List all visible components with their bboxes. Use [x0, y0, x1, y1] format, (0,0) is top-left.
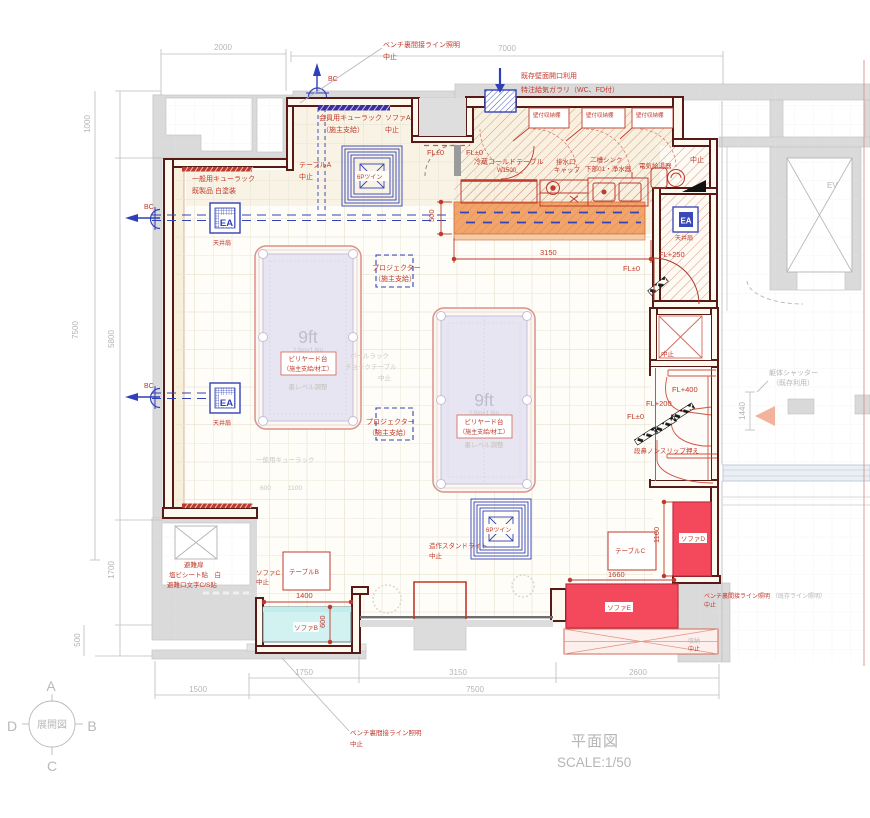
svg-text:（既存ライン照明）: （既存ライン照明）	[772, 592, 826, 600]
svg-text:避難口文字C/S貼: 避難口文字C/S貼	[167, 580, 217, 589]
svg-text:中止: 中止	[383, 52, 397, 61]
svg-text:ビリヤード台: ビリヤード台	[289, 354, 328, 363]
svg-text:7000: 7000	[498, 44, 516, 53]
svg-text:BC: BC	[328, 76, 338, 83]
svg-text:造作スタンドライト: 造作スタンドライト	[429, 541, 488, 550]
svg-text:6Pツイン: 6Pツイン	[357, 175, 382, 181]
svg-text:塩ビシート貼 白: 塩ビシート貼 白	[169, 570, 221, 579]
svg-text:EA: EA	[220, 398, 233, 409]
svg-text:6Pツイン: 6Pツイン	[486, 528, 511, 534]
svg-text:2000: 2000	[214, 43, 232, 52]
svg-text:FL±0: FL±0	[627, 412, 644, 421]
svg-text:中止: 中止	[299, 172, 313, 181]
svg-text:壁付収納棚: 壁付収納棚	[636, 111, 664, 119]
svg-text:9ft: 9ft	[298, 327, 318, 347]
svg-text:テーブルC: テーブルC	[615, 546, 646, 555]
svg-text:（施主支給）: （施主支給）	[322, 125, 364, 134]
svg-text:EA: EA	[220, 218, 233, 229]
svg-text:墨レベル調整: 墨レベル調整	[289, 382, 329, 391]
svg-text:ビリヤード台: ビリヤード台	[465, 417, 504, 426]
svg-text:下部01・浄水器: 下部01・浄水器	[585, 164, 632, 173]
svg-text:A: A	[46, 678, 56, 694]
svg-text:中止: 中止	[688, 645, 700, 653]
svg-text:（施主支給/材工）: （施主支給/材工）	[459, 428, 509, 436]
svg-text:チョークテーブル: チョークテーブル	[345, 362, 397, 371]
svg-text:C: C	[47, 758, 57, 774]
svg-text:ソファC: ソファC	[256, 569, 281, 577]
svg-text:1100: 1100	[288, 485, 302, 492]
svg-text:（施主支給）: （施主支給）	[374, 274, 416, 283]
svg-text:1750: 1750	[295, 668, 313, 677]
svg-text:プロジェクター: プロジェクター	[372, 263, 421, 272]
svg-text:一般用キューラック: 一般用キューラック	[256, 455, 315, 464]
svg-text:W1500: W1500	[497, 168, 517, 174]
svg-text:600: 600	[260, 485, 271, 492]
svg-text:キャップ: キャップ	[554, 166, 581, 174]
svg-text:1660: 1660	[608, 570, 625, 579]
svg-text:中止: 中止	[704, 601, 716, 609]
svg-text:FL±0: FL±0	[466, 148, 483, 157]
svg-text:電気給湯器: 電気給湯器	[639, 161, 672, 170]
svg-text:特注給気ガラリ（WC、FD付）: 特注給気ガラリ（WC、FD付）	[521, 85, 619, 94]
svg-text:墨レベル調整: 墨レベル調整	[465, 440, 505, 449]
svg-text:中止: 中止	[350, 739, 364, 748]
svg-text:避難扉: 避難扉	[184, 560, 204, 569]
svg-text:B: B	[87, 718, 96, 734]
svg-text:D: D	[7, 718, 17, 734]
svg-text:展開図: 展開図	[37, 719, 67, 731]
svg-text:テーブルA: テーブルA	[299, 160, 332, 169]
svg-text:プロジェクター: プロジェクター	[366, 417, 415, 426]
svg-text:壁付収納棚: 壁付収納棚	[533, 111, 561, 119]
svg-text:600: 600	[318, 615, 327, 628]
svg-text:中止: 中止	[661, 349, 675, 358]
svg-text:1440: 1440	[738, 402, 747, 420]
svg-text:1400: 1400	[296, 591, 313, 600]
svg-text:ソファB: ソファB	[294, 624, 318, 632]
svg-text:1000: 1000	[83, 115, 92, 133]
svg-text:500: 500	[427, 209, 436, 222]
svg-text:中止: 中止	[256, 577, 270, 586]
svg-text:躯体シャッター: 躯体シャッター	[769, 368, 818, 377]
svg-text:壁付収納棚: 壁付収納棚	[586, 111, 614, 119]
svg-text:FL+250: FL+250	[659, 250, 685, 259]
svg-text:既製品 白塗装: 既製品 白塗装	[192, 186, 236, 195]
svg-text:BC: BC	[144, 204, 154, 211]
svg-text:9ft: 9ft	[474, 390, 494, 410]
svg-text:3150: 3150	[449, 668, 467, 677]
svg-text:ソファA: ソファA	[385, 114, 411, 122]
svg-text:ボールラック: ボールラック	[350, 352, 389, 360]
svg-text:2600: 2600	[629, 668, 647, 677]
svg-text:ベンチ裏間接ライン照明: ベンチ裏間接ライン照明	[350, 728, 422, 737]
svg-text:1500: 1500	[189, 685, 207, 694]
svg-text:3150: 3150	[540, 248, 557, 257]
svg-text:二槽シンク: 二槽シンク	[590, 155, 623, 164]
svg-text:段鼻ノンスリップ押え: 段鼻ノンスリップ押え	[634, 446, 699, 455]
svg-text:収納: 収納	[688, 637, 700, 645]
svg-text:中止: 中止	[690, 155, 704, 164]
svg-text:FL±0: FL±0	[623, 264, 640, 273]
svg-text:SCALE:1/50: SCALE:1/50	[557, 755, 631, 770]
svg-text:（施主支給/材工）: （施主支給/材工）	[283, 365, 333, 373]
svg-text:7500: 7500	[466, 685, 484, 694]
svg-text:一般用キューラック: 一般用キューラック	[192, 174, 255, 183]
svg-text:FL+400: FL+400	[672, 385, 698, 394]
svg-text:5800: 5800	[107, 330, 116, 348]
svg-text:ベンチ裏間接ライン照明: ベンチ裏間接ライン照明	[383, 40, 460, 49]
svg-text:1160: 1160	[652, 527, 661, 543]
svg-text:FL±0: FL±0	[427, 148, 444, 157]
svg-text:天井扇: 天井扇	[675, 234, 693, 242]
svg-text:天井扇: 天井扇	[213, 239, 231, 247]
svg-text:ソファD: ソファD	[681, 535, 706, 543]
svg-text:テーブルB: テーブルB	[289, 567, 319, 576]
svg-text:中止: 中止	[385, 125, 399, 134]
svg-text:中止: 中止	[429, 551, 443, 560]
svg-text:（既存利用）: （既存利用）	[772, 378, 814, 387]
svg-text:排水口: 排水口	[556, 157, 576, 166]
svg-text:会員用キューラック: 会員用キューラック	[319, 113, 382, 122]
svg-text:冷蔵コールドテーブル: 冷蔵コールドテーブル	[474, 157, 544, 166]
svg-text:EA: EA	[680, 217, 691, 226]
svg-text:ベンチ裏間接ライン照明: ベンチ裏間接ライン照明	[704, 592, 770, 600]
svg-text:中止: 中止	[378, 373, 392, 382]
svg-text:7500: 7500	[71, 321, 80, 339]
svg-text:既存壁面開口利用: 既存壁面開口利用	[521, 71, 577, 80]
svg-text:500: 500	[73, 633, 82, 647]
svg-text:BC: BC	[144, 383, 154, 390]
svg-text:1700: 1700	[107, 561, 116, 579]
svg-text:平面図: 平面図	[571, 733, 619, 750]
svg-text:ソファE: ソファE	[607, 604, 632, 612]
svg-text:EV: EV	[827, 181, 838, 190]
svg-text:天井扇: 天井扇	[213, 419, 231, 427]
svg-text:（施主支給）: （施主支給）	[368, 428, 410, 437]
svg-text:FL+200: FL+200	[646, 399, 672, 408]
